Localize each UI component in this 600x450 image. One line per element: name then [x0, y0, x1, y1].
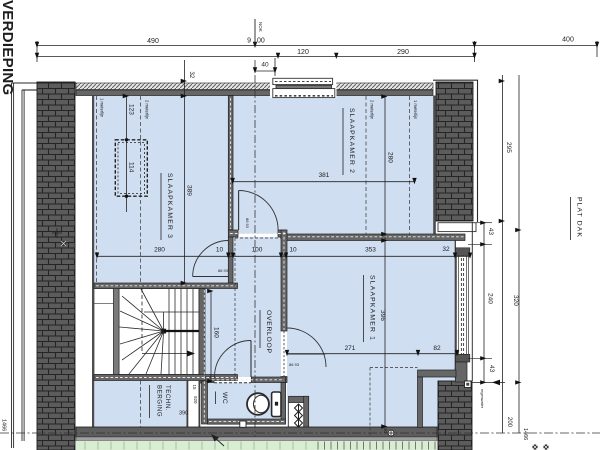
svg-text:32: 32 [188, 72, 194, 79]
svg-text:240: 240 [487, 293, 494, 304]
svg-text:490: 490 [147, 38, 159, 45]
svg-text:43: 43 [487, 228, 494, 236]
svg-text:1 meterlijn: 1 meterlijn [413, 100, 418, 120]
svg-text:200: 200 [506, 417, 512, 428]
svg-text:1466: 1466 [522, 428, 528, 440]
svg-text:120: 120 [297, 49, 309, 56]
svg-text:160: 160 [213, 327, 220, 338]
svg-text:396: 396 [379, 310, 386, 321]
svg-text:32: 32 [442, 246, 450, 253]
svg-text:320: 320 [512, 295, 519, 306]
svg-text:389: 389 [186, 185, 193, 196]
svg-text:280: 280 [154, 247, 165, 254]
svg-text:271: 271 [345, 345, 356, 352]
svg-text:30: 30 [383, 428, 388, 433]
svg-text:920: 920 [193, 396, 198, 404]
svg-text:regenwater: regenwater [480, 389, 484, 409]
svg-text:353: 353 [365, 247, 376, 254]
svg-text:40: 40 [261, 62, 269, 69]
svg-text:9: 9 [247, 38, 251, 45]
svg-text:10: 10 [216, 247, 224, 254]
svg-text:NOK: NOK [258, 22, 263, 32]
svg-text:OVERLOOP: OVERLOOP [265, 310, 272, 354]
svg-text:381: 381 [319, 172, 330, 179]
svg-text:BERGING: BERGING [156, 385, 163, 417]
svg-text:00: 00 [257, 38, 265, 45]
svg-text:295: 295 [505, 142, 512, 153]
svg-text:1466: 1466 [1, 419, 7, 431]
svg-text:290: 290 [397, 49, 409, 56]
svg-text:82: 82 [433, 345, 441, 352]
svg-text:114: 114 [128, 162, 135, 173]
svg-text:280: 280 [387, 152, 394, 163]
svg-text:WC: WC [221, 392, 228, 404]
svg-text:10: 10 [289, 247, 297, 254]
svg-text:86 93: 86 93 [245, 218, 250, 229]
svg-text:2 meterlijn: 2 meterlijn [370, 100, 375, 120]
svg-text:VERDIEPING: VERDIEPING [0, 0, 16, 96]
svg-text:SLAAPKAMER 1: SLAAPKAMER 1 [369, 275, 376, 341]
svg-text:TECHN.: TECHN. [164, 385, 171, 411]
svg-text:123: 123 [128, 104, 135, 115]
svg-text:SLAAPKAMER 2: SLAAPKAMER 2 [348, 108, 355, 174]
svg-text:2 meterlijn: 2 meterlijn [145, 100, 150, 120]
svg-text:86 93: 86 93 [289, 362, 300, 367]
svg-text:15: 15 [192, 385, 197, 391]
svg-text:86 93: 86 93 [218, 268, 229, 273]
svg-text:SLAAPKAMER 3: SLAAPKAMER 3 [166, 173, 173, 239]
svg-text:1 meterlijn: 1 meterlijn [100, 98, 105, 118]
svg-text:43: 43 [488, 365, 495, 373]
svg-text:390: 390 [179, 411, 188, 417]
svg-text:PLAT DAK: PLAT DAK [576, 197, 583, 238]
svg-text:400: 400 [562, 37, 574, 44]
svg-text:100: 100 [252, 247, 263, 254]
